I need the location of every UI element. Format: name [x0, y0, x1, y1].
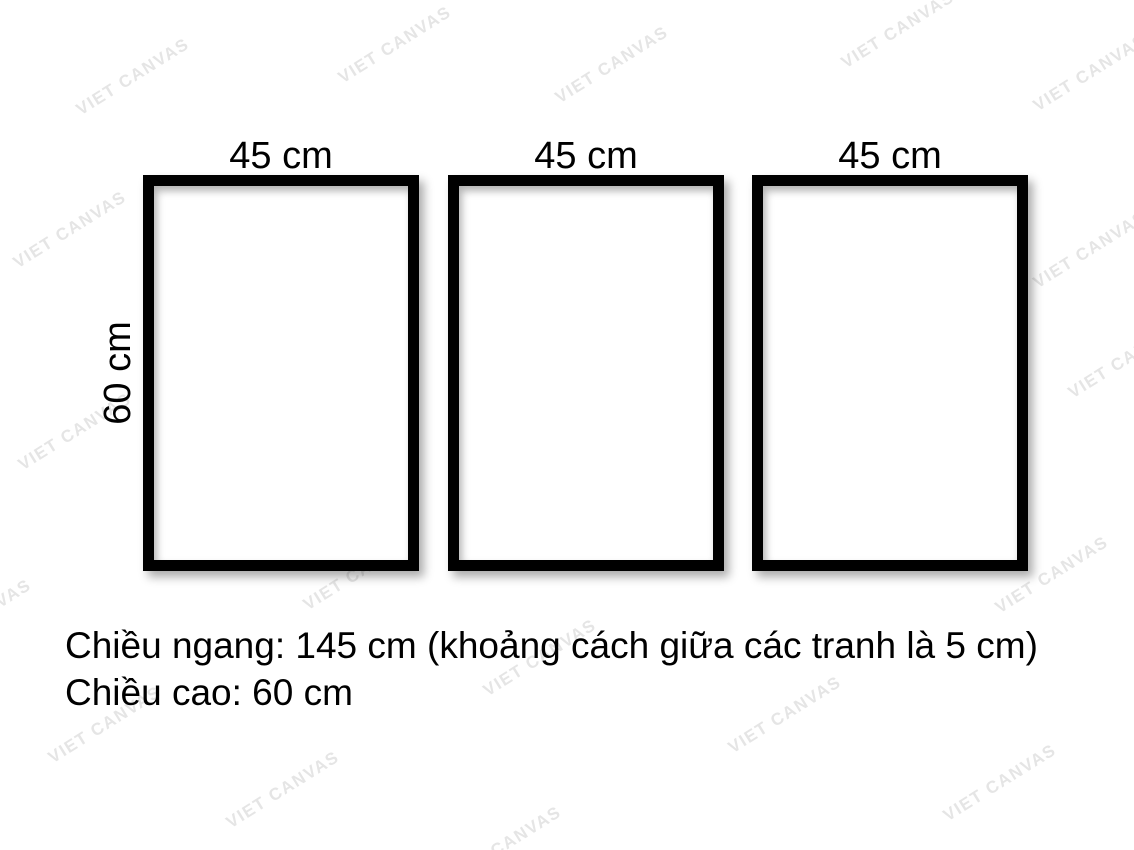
dimension-note-height: Chiều cao: 60 cm — [65, 669, 1038, 716]
product-dimension-diagram: VIET CANVASVIET CANVASVIET CANVASVIET CA… — [0, 0, 1134, 850]
frame-1: 45 cm — [143, 175, 419, 571]
watermark-text: VIET CANVAS — [838, 0, 958, 73]
watermark-text: VIET CANVAS — [0, 575, 35, 661]
watermark-text: VIET CANVAS — [940, 740, 1060, 826]
watermark-text: VIET CANVAS — [223, 747, 343, 833]
watermark-text: VIET CANVAS — [445, 802, 565, 850]
frame-3-width-label: 45 cm — [838, 137, 941, 175]
watermark-text: VIET CANVAS — [552, 22, 672, 108]
frame-3: 45 cm — [752, 175, 1028, 571]
frame-2-width-label: 45 cm — [534, 137, 637, 175]
watermark-text: VIET CANVAS — [1030, 207, 1134, 293]
dimension-notes: Chiều ngang: 145 cm (khoảng cách giữa cá… — [65, 622, 1038, 716]
watermark-text: VIET CANVAS — [1065, 317, 1134, 403]
watermark-text: VIET CANVAS — [73, 34, 193, 120]
frame-2: 45 cm — [448, 175, 724, 571]
watermark-text: VIET CANVAS — [1030, 30, 1134, 116]
watermark-text: VIET CANVAS — [10, 187, 130, 273]
frame-1-width-label: 45 cm — [229, 137, 332, 175]
watermark-text: VIET CANVAS — [335, 2, 455, 88]
dimension-note-width: Chiều ngang: 145 cm (khoảng cách giữa cá… — [65, 622, 1038, 669]
frame-height-label: 60 cm — [99, 321, 137, 424]
